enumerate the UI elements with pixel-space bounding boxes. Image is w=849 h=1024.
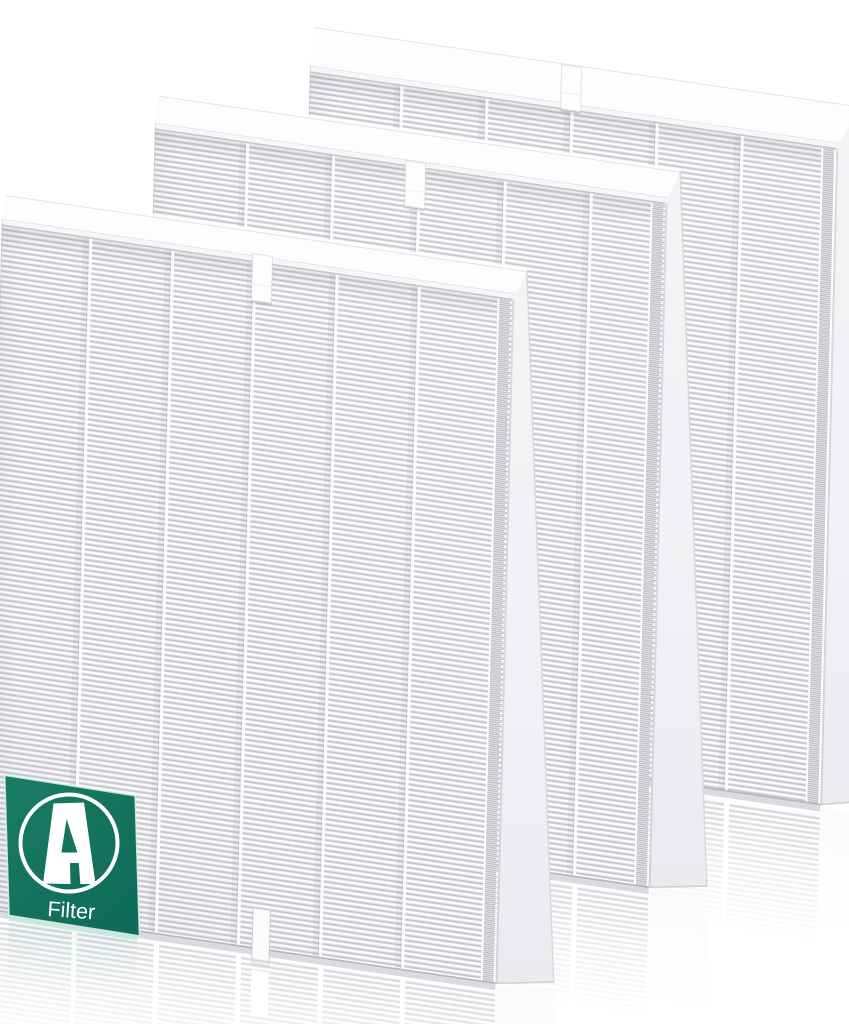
- svg-text:Filter: Filter: [47, 897, 96, 924]
